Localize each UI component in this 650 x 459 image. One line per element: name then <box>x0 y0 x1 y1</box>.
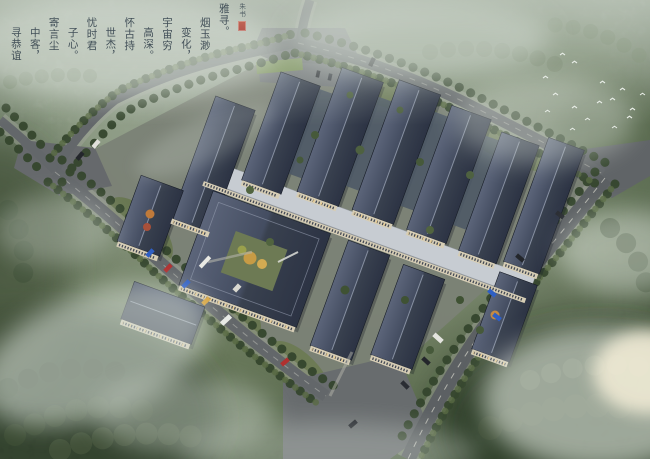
tree <box>311 131 319 139</box>
fog-patch <box>455 75 635 165</box>
calligraphy-column: 寄言尘 <box>44 3 63 95</box>
signature-text: 朱书 <box>238 3 246 18</box>
tree <box>356 146 365 155</box>
tree <box>466 171 474 179</box>
calligraphy-column: 烟玉渺 <box>195 3 214 95</box>
calligraphy-column: 高深。 <box>138 3 157 95</box>
calligraphy-inscription: 朱书 雅寻。 烟玉渺 变化， 宇宙穷 高深。 怀古持 世杰， 忧时君 子心。 寄… <box>6 3 250 95</box>
tree <box>246 186 254 194</box>
calligraphy-column: 忧时君 <box>82 3 101 95</box>
architectural-rendering: 朱书 雅寻。 烟玉渺 变化， 宇宙穷 高深。 怀古持 世杰， 忧时君 子心。 寄… <box>0 0 650 459</box>
tree <box>297 157 304 164</box>
tree <box>476 326 484 334</box>
tree <box>401 296 409 304</box>
tree <box>426 346 434 354</box>
calligraphy-column: 中客， <box>25 3 44 95</box>
fog-patch <box>290 0 550 78</box>
tree <box>341 286 350 295</box>
autumn-tree <box>143 223 151 231</box>
calligraphy-column: 世杰， <box>100 3 119 95</box>
calligraphy-column: 变化， <box>176 3 195 95</box>
tree <box>416 158 424 166</box>
seal-stamp <box>238 21 246 31</box>
courtyard-tree <box>257 259 267 269</box>
calligraphy-column: 雅寻。 <box>214 3 233 95</box>
courtyard-tree <box>266 238 274 246</box>
autumn-tree <box>146 210 155 219</box>
tree <box>456 296 464 304</box>
calligraphy-column: 寻恭谊 <box>6 3 25 95</box>
calligraphy-column: 怀古持 <box>119 3 138 95</box>
tree <box>426 226 434 234</box>
fog-patch <box>0 195 115 265</box>
calligraphy-column: 子心。 <box>63 3 82 95</box>
calligraphy-signature: 朱书 <box>233 3 250 95</box>
calligraphy-column: 宇宙穷 <box>157 3 176 95</box>
